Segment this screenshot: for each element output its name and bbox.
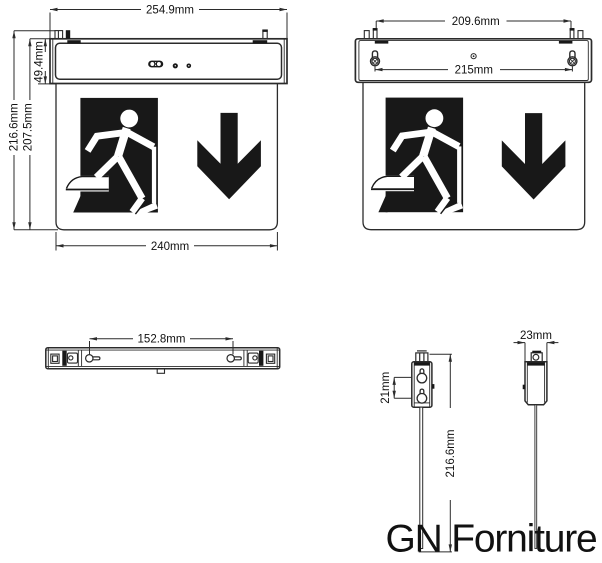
svg-text:49.4mm: 49.4mm xyxy=(34,41,46,83)
svg-text:GN Forniture: GN Forniture xyxy=(386,518,597,561)
svg-text:209.6mm: 209.6mm xyxy=(452,16,500,28)
svg-text:216.6mm: 216.6mm xyxy=(445,430,457,478)
svg-text:21mm: 21mm xyxy=(380,372,392,404)
svg-text:207.5mm: 207.5mm xyxy=(23,103,35,151)
svg-text:23mm: 23mm xyxy=(520,330,552,342)
svg-text:152.8mm: 152.8mm xyxy=(138,334,186,346)
svg-text:240mm: 240mm xyxy=(151,241,189,253)
svg-text:216.6mm: 216.6mm xyxy=(8,103,20,151)
svg-text:254.9mm: 254.9mm xyxy=(146,5,194,17)
svg-text:215mm: 215mm xyxy=(455,65,493,77)
